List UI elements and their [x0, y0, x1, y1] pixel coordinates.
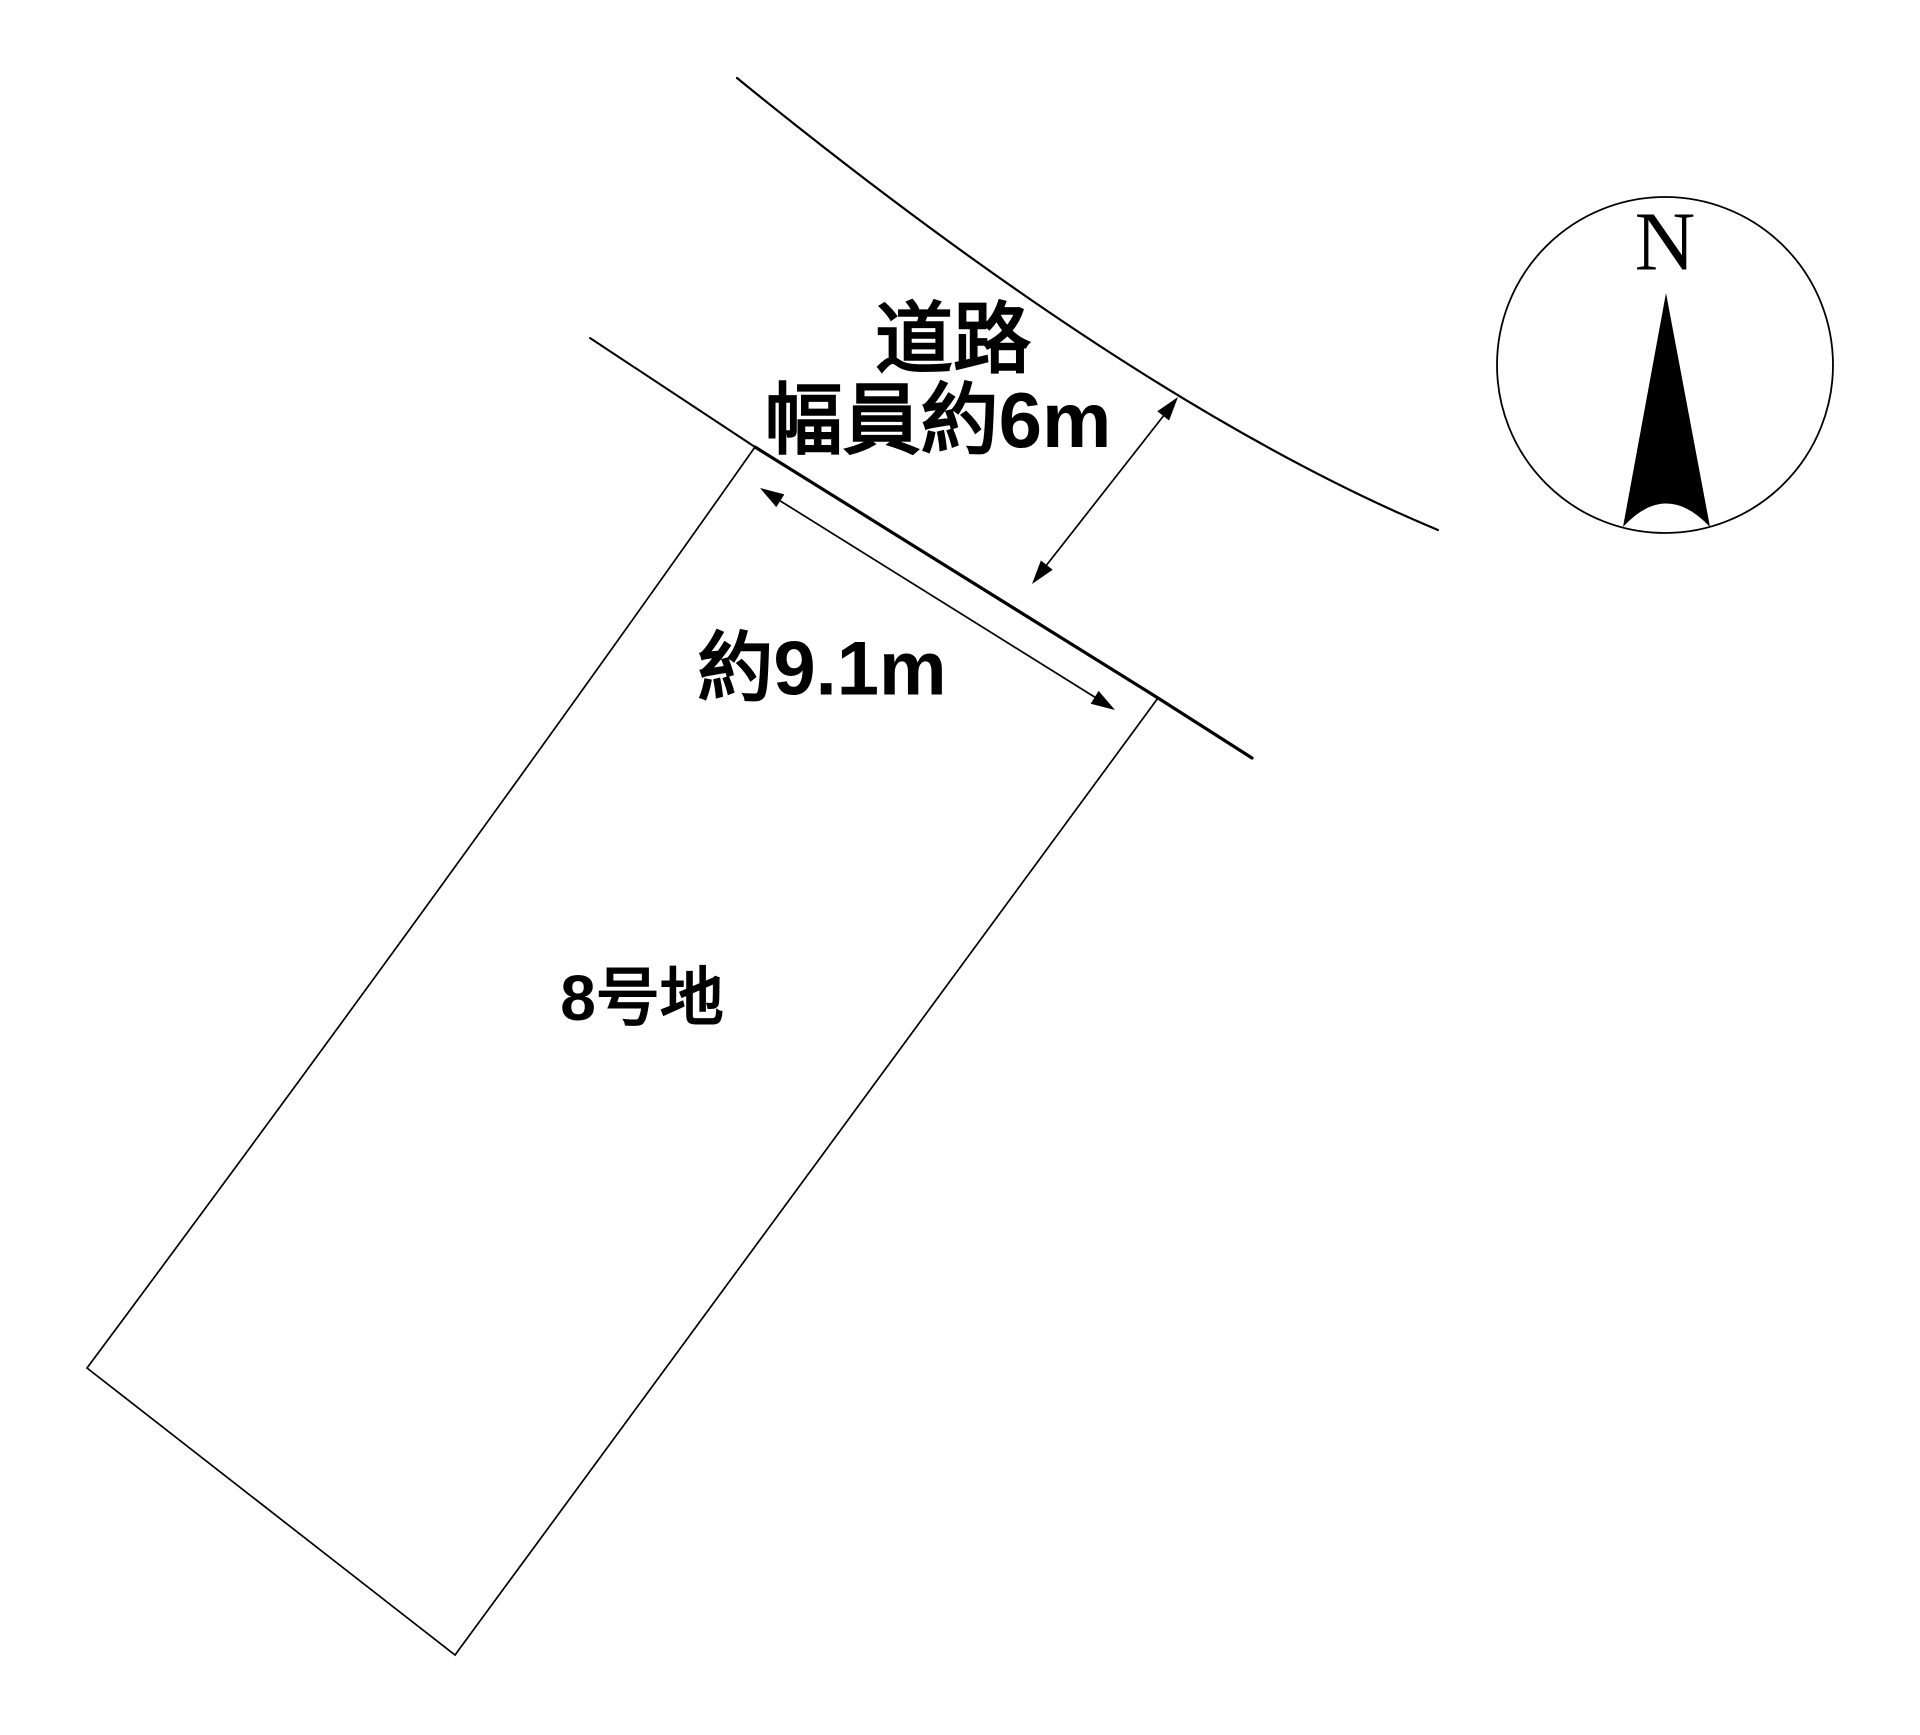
road-width-dimension-arrowhead-top-icon: [1157, 397, 1178, 421]
compass-needle-icon: [1623, 293, 1710, 527]
frontage-dimension-label: 約9.1m: [697, 627, 946, 712]
lot-plan-diagram: 道路 幅員約6m 約9.1m 8号地 N: [0, 0, 1920, 1735]
road-lower-edge-line: [590, 338, 755, 447]
parcel-label: 8号地: [560, 962, 724, 1034]
parcel-outline: [87, 447, 1158, 1655]
lot-plan-canvas: 道路 幅員約6m 約9.1m 8号地 N: [0, 0, 1920, 1735]
compass: N: [1497, 196, 1833, 534]
road-label-line2: 幅員約6m: [765, 376, 1112, 464]
frontage-dimension-arrowhead-right-icon: [1091, 691, 1115, 710]
road-width-dimension-arrowhead-bottom-icon: [1032, 561, 1053, 585]
frontage-dimension-arrowhead-left-icon: [760, 488, 784, 507]
road-label-line1: 道路: [875, 295, 1032, 383]
compass-north-label: N: [1635, 196, 1696, 289]
